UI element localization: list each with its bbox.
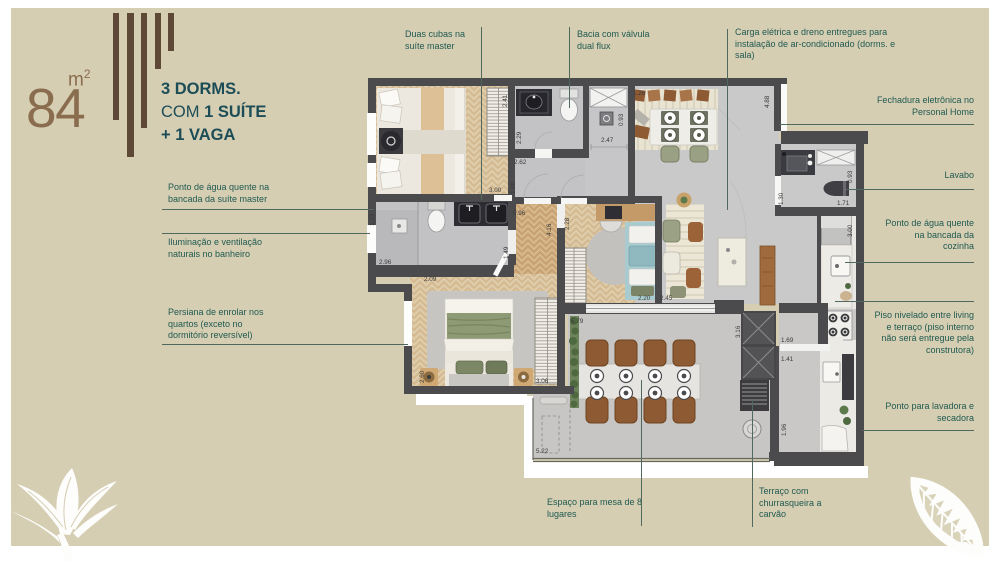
svg-text:4.88: 4.88 <box>764 95 771 108</box>
svg-text:5.79: 5.79 <box>571 318 584 325</box>
svg-text:1.00: 1.00 <box>510 181 517 194</box>
svg-text:2.20: 2.20 <box>638 295 651 302</box>
svg-text:1.49: 1.49 <box>503 246 510 259</box>
svg-text:1.71: 1.71 <box>837 200 850 207</box>
svg-text:1.30: 1.30 <box>778 192 785 205</box>
svg-text:2.62: 2.62 <box>514 159 527 166</box>
svg-text:5.22: 5.22 <box>536 448 549 455</box>
svg-text:2.28: 2.28 <box>564 217 571 230</box>
svg-text:1.23: 1.23 <box>369 213 376 226</box>
svg-text:2.29: 2.29 <box>516 131 523 144</box>
svg-text:0.96: 0.96 <box>513 210 526 217</box>
svg-text:3.16: 3.16 <box>735 325 742 338</box>
svg-text:3.00: 3.00 <box>847 224 854 237</box>
svg-text:0.93: 0.93 <box>847 170 854 183</box>
svg-text:1.26: 1.26 <box>633 90 646 97</box>
svg-text:2.96: 2.96 <box>379 259 392 266</box>
svg-text:1.69: 1.69 <box>781 337 794 344</box>
svg-text:2.60: 2.60 <box>419 370 426 383</box>
svg-text:0.93: 0.93 <box>618 113 625 126</box>
svg-text:1.96: 1.96 <box>781 423 788 436</box>
svg-text:2.45: 2.45 <box>660 295 673 302</box>
svg-text:4.16: 4.16 <box>546 223 553 236</box>
svg-text:1.41: 1.41 <box>781 356 794 363</box>
svg-text:2.47: 2.47 <box>601 137 614 144</box>
svg-text:2.09: 2.09 <box>424 276 437 283</box>
svg-text:3.06: 3.06 <box>536 378 549 385</box>
svg-text:2.41: 2.41 <box>502 94 509 107</box>
svg-text:3.00: 3.00 <box>489 187 502 194</box>
